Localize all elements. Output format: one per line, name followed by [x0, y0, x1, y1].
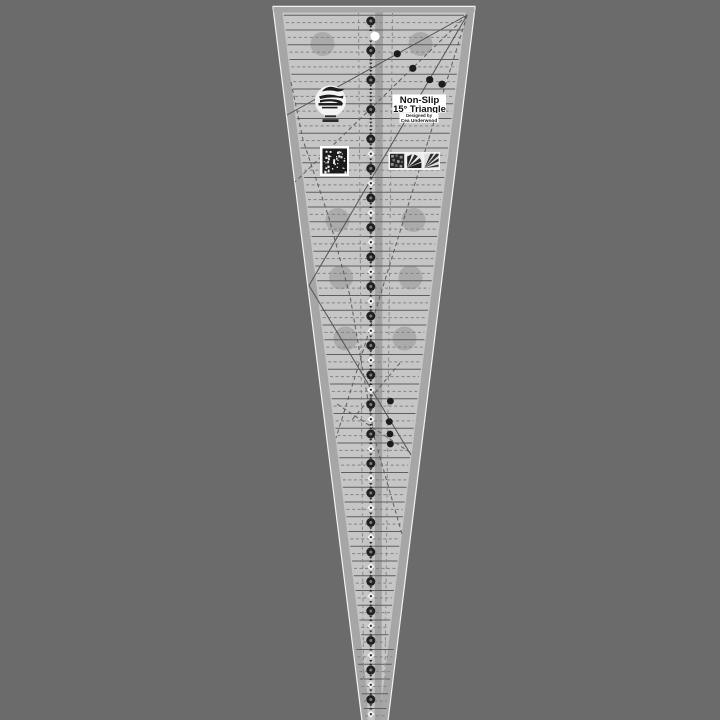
- svg-text:Cea Underwood: Cea Underwood: [401, 118, 438, 124]
- svg-text:Designed by: Designed by: [406, 113, 433, 118]
